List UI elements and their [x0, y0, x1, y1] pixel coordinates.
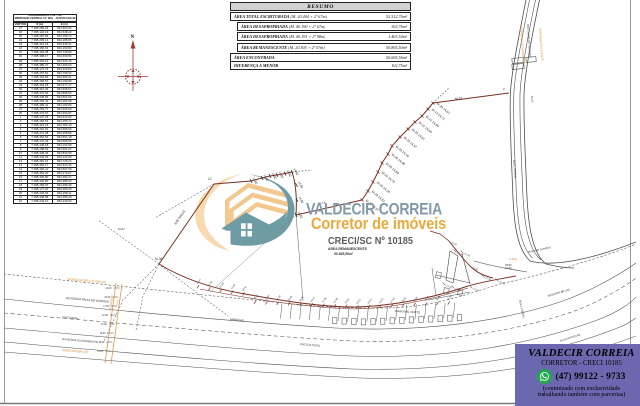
- svg-text:20,47: 20,47: [310, 296, 316, 303]
- svg-text:NW 346,62: NW 346,62: [174, 209, 187, 225]
- svg-text:MARGINAL: MARGINAL: [230, 317, 245, 323]
- svg-text:SERVIDAO EXISTENTE: SERVIDAO EXISTENTE: [538, 28, 544, 62]
- svg-text:14,82: 14,82: [293, 168, 300, 177]
- svg-text:32,59: 32,59: [447, 294, 453, 301]
- svg-text:12,40: 12,40: [464, 252, 471, 258]
- svg-text:M-36: M-36: [155, 257, 162, 261]
- svg-text:24,51: 24,51: [356, 298, 362, 305]
- svg-text:12: 12: [208, 177, 212, 181]
- svg-text:14,82: 14,82: [298, 196, 305, 205]
- svg-text:14.00: 14.00: [101, 324, 107, 326]
- svg-text:19,46: 19,46: [299, 295, 305, 302]
- svg-text:DIVISORIA ACOSTAMENTO: DIVISORIA ACOSTAMENTO: [62, 337, 99, 344]
- svg-text:M-32 14,75: M-32 14,75: [381, 171, 396, 185]
- svg-text:16,43: 16,43: [264, 294, 270, 301]
- svg-text:DIVISORIA FAIXA DE DOMINIO: DIVISORIA FAIXA DE DOMINIO: [66, 296, 110, 304]
- svg-text:EIXO RAMAL: EIXO RAMAL: [62, 315, 80, 321]
- svg-text:AREA REMANESCENTE: AREA REMANESCENTE: [328, 247, 368, 251]
- svg-text:FAIXA DE DOMINIO: FAIXA DE DOMINIO: [527, 245, 551, 254]
- svg-text:SERVIDAO DE PASSAGEM: SERVIDAO DE PASSAGEM: [519, 26, 526, 65]
- svg-text:2.940: 2.940: [508, 257, 517, 261]
- svg-text:13.00: 13.00: [97, 351, 103, 353]
- svg-text:23,50: 23,50: [344, 297, 350, 304]
- svg-text:13.00: 13.00: [106, 288, 112, 290]
- svg-text:14,82: 14,82: [297, 181, 304, 190]
- svg-text:12.00: 12.00: [102, 315, 108, 317]
- svg-text:15,00: 15,00: [530, 96, 535, 103]
- svg-text:12,40: 12,40: [499, 280, 506, 286]
- svg-text:12.40: 12.40: [505, 266, 512, 270]
- svg-text:18,45: 18,45: [287, 295, 293, 302]
- svg-text:12,40: 12,40: [473, 287, 480, 293]
- svg-text:11,38: 11,38: [207, 280, 213, 287]
- svg-text:12,39: 12,39: [219, 282, 225, 289]
- svg-text:21,48: 21,48: [321, 296, 327, 303]
- svg-text:M-24 14,97: M-24 14,97: [403, 136, 418, 150]
- svg-text:N: N: [131, 35, 135, 40]
- svg-text:RUA GERALDO SILVEIRA: RUA GERALDO SILVEIRA: [526, 24, 532, 58]
- svg-text:16.00: 16.00: [100, 333, 106, 335]
- svg-text:M-37: M-37: [118, 227, 125, 231]
- svg-text:6,00: 6,00: [115, 300, 120, 306]
- svg-text:2: 2: [503, 87, 505, 91]
- svg-text:M-20 14,26: M-20 14,26: [376, 181, 391, 195]
- svg-text:MARGINAL NORTE: MARGINAL NORTE: [395, 309, 420, 314]
- svg-text:26,53: 26,53: [378, 297, 384, 304]
- svg-text:M-35 14,81: M-35 14,81: [411, 128, 426, 142]
- svg-text:PISTA DE ROLAM.: PISTA DE ROLAM.: [559, 332, 582, 343]
- svg-text:25,52: 25,52: [367, 298, 373, 305]
- svg-text:RODOVIA BR-101 KM 132: RODOVIA BR-101 KM 132: [68, 277, 107, 284]
- svg-text:50.805,50m²: 50.805,50m²: [334, 252, 354, 256]
- svg-text:RODOVIA BR-101: RODOVIA BR-101: [547, 287, 571, 298]
- svg-text:RUA LATERAL: RUA LATERAL: [518, 299, 526, 319]
- svg-text:22,49: 22,49: [333, 297, 339, 304]
- svg-text:18.00: 18.00: [99, 342, 105, 344]
- svg-text:RUA LATERAL: RUA LATERAL: [512, 160, 518, 180]
- svg-text:13,40: 13,40: [230, 283, 236, 290]
- svg-text:68,91: 68,91: [455, 96, 463, 101]
- svg-text:EIXO DA PISTA: EIXO DA PISTA: [300, 342, 320, 348]
- svg-text:14,41: 14,41: [242, 285, 248, 292]
- svg-text:27,54: 27,54: [390, 297, 396, 304]
